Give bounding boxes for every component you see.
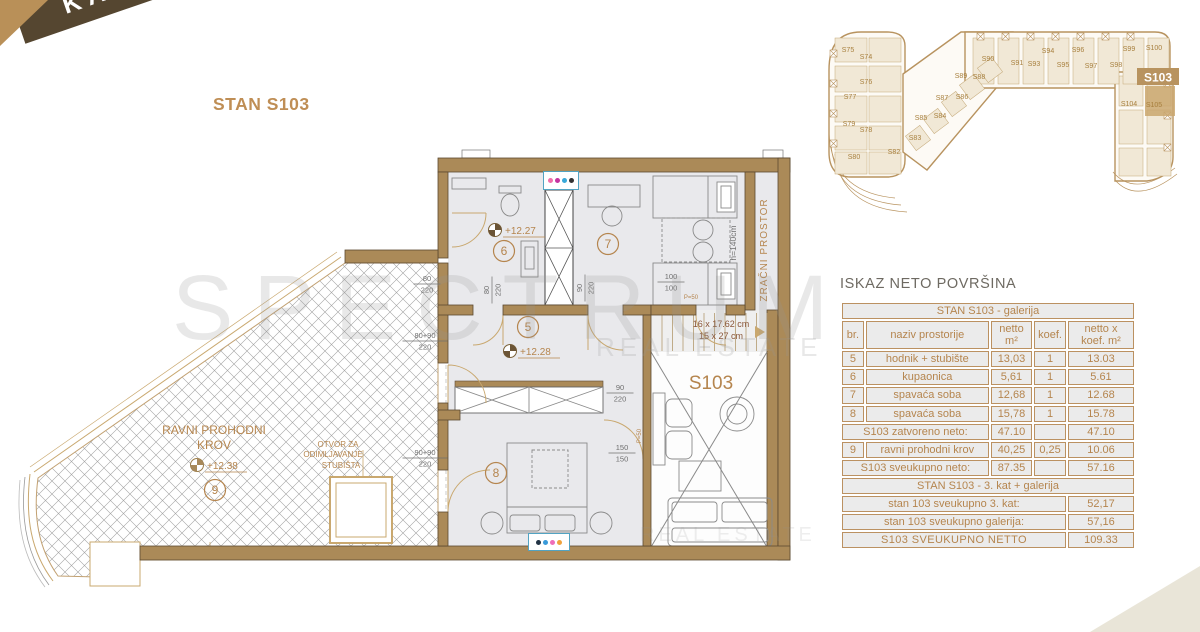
- key-plan-unit-s96: S96: [1072, 47, 1085, 54]
- key-plan-unit-s84: S84: [934, 113, 947, 120]
- table-header-row: br. naziv prostorije netto m² koef. nett…: [842, 321, 1134, 349]
- key-plan-unit-s80: S80: [848, 154, 861, 161]
- areas-heading: ISKAZ NETO POVRŠINA: [840, 276, 1136, 292]
- table-row: 6 kupaonica 5,61 1 5.61: [842, 369, 1134, 385]
- svg-text:OTVOR ZA: OTVOR ZA: [318, 440, 360, 449]
- lower-rooms-floor: [448, 310, 651, 547]
- areas-panel: ISKAZ NETO POVRŠINA STAN S103 - galerija…: [840, 276, 1136, 550]
- key-plan-unit-s82: S82: [888, 149, 901, 156]
- key-plan-unit-s78: S78: [860, 127, 873, 134]
- installation-shaft: [545, 190, 573, 305]
- svg-text:h=140cm: h=140cm: [728, 225, 738, 260]
- key-plan-unit-s86: S86: [956, 94, 969, 101]
- key-plan-unit-s75: S75: [842, 47, 855, 54]
- svg-text:220: 220: [421, 286, 434, 295]
- key-plan-unit-s91: S91: [1011, 60, 1024, 67]
- svg-text:80+90: 80+90: [414, 331, 435, 340]
- table-summary-row: stan 103 sveukupno galerija: 57,16: [842, 514, 1134, 530]
- svg-text:5: 5: [525, 320, 532, 334]
- svg-text:7: 7: [605, 237, 612, 251]
- svg-text:P=50: P=50: [684, 295, 699, 301]
- table-row: 9 ravni prohodni krov 40,25 0,25 10.06: [842, 442, 1134, 458]
- key-plan-unit-s104: S104: [1121, 101, 1137, 108]
- table-section-title-2: STAN S103 - 3. kat + galerija: [842, 478, 1134, 494]
- svg-text:KROV: KROV: [197, 438, 231, 452]
- key-plan-unit-s93: S93: [1028, 61, 1041, 68]
- svg-text:80: 80: [423, 274, 431, 283]
- svg-text:100: 100: [665, 272, 678, 281]
- svg-text:15 x 27 cm: 15 x 27 cm: [699, 331, 743, 341]
- svg-text:80: 80: [482, 286, 491, 294]
- table-summary-row: stan 103 sveukupno 3. kat: 52,17: [842, 496, 1134, 512]
- svg-text:+12.28: +12.28: [520, 347, 551, 358]
- appliance-logo-bottom: [528, 533, 570, 551]
- table-row: 5 hodnik + stubište 13,03 1 13.03: [842, 351, 1134, 367]
- key-plan-unit-s105: S105: [1146, 102, 1162, 109]
- appliance-logo-top: [543, 171, 579, 190]
- table-row: 8 spavaća soba 15,78 1 15.78: [842, 406, 1134, 422]
- svg-text:ODIMLJAVANJE: ODIMLJAVANJE: [303, 450, 362, 459]
- unit-s103-highlight: [1145, 86, 1175, 116]
- table-row: 7 spavaća soba 12,68 1 12.68: [842, 387, 1134, 403]
- svg-text:150: 150: [616, 443, 629, 452]
- svg-text:ZRAČNI PROSTOR: ZRAČNI PROSTOR: [757, 198, 770, 301]
- building-key-plan: S75S74S76S77S79S78S80S82S83S85S84S87S86S…: [829, 32, 1179, 212]
- key-plan-unit-s76: S76: [860, 79, 873, 86]
- floorplan-sheet: ZRAČNI PROSTORh=140cmRAVNI PROHODNIKROVO…: [0, 0, 1200, 632]
- svg-text:90: 90: [575, 284, 584, 292]
- table-subtotal-row: S103 zatvoreno neto: 47.10 47.10: [842, 424, 1134, 440]
- svg-text:+12.27: +12.27: [505, 226, 536, 237]
- key-plan-unit-s94: S94: [1042, 48, 1055, 55]
- svg-text:RAVNI PROHODNI: RAVNI PROHODNI: [162, 423, 266, 437]
- svg-text:220: 220: [419, 460, 432, 469]
- terrace-step: [90, 542, 140, 586]
- table-subtotal-row: S103 sveukupno neto: 87.35 57.16: [842, 460, 1134, 476]
- svg-text:16 x 17.62 cm: 16 x 17.62 cm: [693, 319, 750, 329]
- svg-text:150: 150: [616, 455, 629, 464]
- svg-text:220: 220: [494, 284, 503, 297]
- svg-text:220: 220: [587, 282, 596, 295]
- table-total-row: S103 SVEUKUPNO NETTO 109.33: [842, 532, 1134, 548]
- svg-text:90: 90: [616, 383, 624, 392]
- svg-text:6: 6: [501, 244, 508, 258]
- svg-text:220: 220: [614, 395, 627, 404]
- svg-text:P=50: P=50: [637, 428, 643, 443]
- key-plan-unit-s89: S89: [955, 73, 968, 80]
- key-plan-unit-s79: S79: [843, 121, 856, 128]
- key-plan-unit-s99: S99: [1123, 46, 1136, 53]
- key-plan-unit-s97: S97: [1085, 63, 1098, 70]
- areas-table: STAN S103 - galerija br. naziv prostorij…: [840, 301, 1136, 550]
- key-plan-unit-s98: S98: [1110, 62, 1123, 69]
- svg-text:STUBIŠTA: STUBIŠTA: [322, 461, 361, 470]
- svg-text:220: 220: [419, 343, 432, 352]
- key-plan-unit-s87: S87: [936, 95, 949, 102]
- key-plan-unit-s103: S103: [1144, 71, 1172, 85]
- svg-text:9: 9: [212, 483, 219, 497]
- page-title: STAN S103: [213, 94, 310, 115]
- svg-text:100: 100: [665, 284, 678, 293]
- svg-text:90+90: 90+90: [414, 448, 435, 457]
- key-plan-unit-s95: S95: [1057, 62, 1070, 69]
- table-section-title: STAN S103 - galerija: [842, 303, 1134, 319]
- key-plan-unit-s83: S83: [909, 135, 922, 142]
- key-plan-unit-s100: S100: [1146, 45, 1162, 52]
- key-plan-unit-s74: S74: [860, 54, 873, 61]
- svg-text:8: 8: [493, 466, 500, 480]
- key-plan-unit-s88: S88: [973, 74, 986, 81]
- svg-text:S103: S103: [689, 373, 733, 394]
- key-plan-unit-s77: S77: [844, 94, 857, 101]
- key-plan-unit-s90: S90: [982, 56, 995, 63]
- svg-text:+12.38: +12.38: [207, 461, 238, 472]
- key-plan-unit-s85: S85: [915, 115, 928, 122]
